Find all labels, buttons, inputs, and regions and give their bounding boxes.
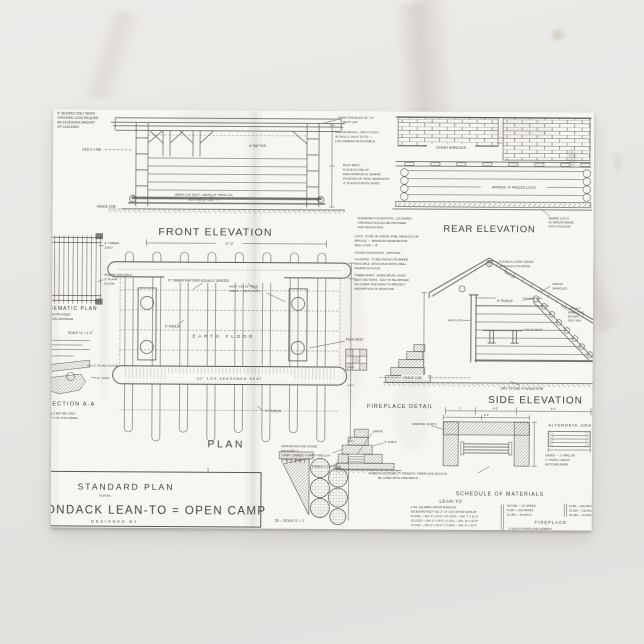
dovetail-note: LOG DIMENS ADJUSTABLE. [335, 139, 376, 143]
cedar-shingles-label: CEDAR SHINGLES [436, 146, 467, 150]
cedar-shingles-label: CEDAR [552, 282, 563, 286]
grate-label: GRATE [373, 429, 383, 433]
seat-note: HEWN LOG SEAT—HEWN 10" WIDE LOG [175, 193, 234, 197]
mortar-mix-note: MASONRY C : [281, 449, 300, 453]
rafters-note: 6" TIMBER RAFTERS EQUALLY SPACED [168, 278, 229, 282]
rubble-label: RUBBLE CONCRETE [312, 464, 341, 468]
schedule-row: 2 SQ. SQUARES CEDAR SHINGLES [411, 505, 456, 509]
hardware-row: 10 LBS — 10d NAILS [569, 509, 594, 513]
cedar-shingles-label: SHINGLES [552, 286, 567, 290]
ventilation-note: FOR VENTILATION. [358, 225, 385, 229]
peeled-logs-label: APPROX. 9" PEELED LOGS [492, 185, 537, 189]
background-stain [612, 150, 624, 176]
ceiling-line-label: CEIL'G LINE [82, 148, 102, 152]
hardware-row: 8 LBS — 60d SPIKES [569, 504, 594, 508]
logs-note: WALL LOGS — 8". [354, 243, 379, 247]
pack-rest-bench [483, 330, 522, 343]
lean-to-header: LEAN-TO [439, 499, 462, 504]
caulking-note: TAMPED IN PLACE. [354, 266, 381, 270]
alternate-grate-title: ALTERNATE GRATE [548, 422, 594, 427]
dimension: 4'-0" [493, 407, 498, 411]
side-elevation-title: SIDE ELEVATION [488, 395, 583, 407]
width-dimension: 17'-0" [225, 242, 234, 246]
shelf-label: 4" SHELF [384, 440, 397, 444]
title-block-border [51, 467, 261, 527]
pack-rest-note: IT, PLACE IN BOTH SIDES. [343, 181, 381, 185]
fireplace-header: FIREPLACE [535, 520, 567, 525]
rear-elevation-title: REAR ELEVATION [443, 224, 535, 236]
purlin-label: 6" PURLIN [265, 409, 281, 413]
blueprint-drawing: IF DESIRED ONLY WHEN CROOKED LOGS REQUIR… [51, 109, 595, 530]
schedule-row: 600 BOARD FEET T&G 2" x 8" S1S, OR FIR S… [411, 510, 477, 514]
purlin-label: 6" PURLIN [497, 299, 513, 303]
background-stain [549, 28, 567, 42]
asphalt-note: ONLY WH [568, 318, 581, 322]
scale-label: SCALE ¼" = 1'-0" [68, 331, 93, 335]
pack-rest-label: PACK REST [526, 328, 543, 332]
blueprint-labels: IF DESIRED ONLY WHEN CROOKED LOGS REQUIR… [51, 111, 595, 531]
title-block-standard-plan: STANDARD PLAN [78, 482, 175, 493]
plan-title: PLAN [207, 438, 245, 450]
cement-row: 2 SACKS PORTLAND CEMENT [509, 526, 552, 530]
hardware-row: 8 LBS — 40d SPIKES [507, 508, 534, 512]
hardware-row: 10 LBS — 8d NAILS [507, 513, 532, 517]
front-corner-note: OF CAULKING. [57, 125, 80, 129]
pack-rest-note: PACK REST : [343, 163, 362, 167]
firebrick-note: BE LINED WITH FIRE BRICK. [378, 476, 419, 480]
earth-floor-label: EARTH FLOOR [193, 334, 256, 339]
hardware-row: 100 LBS — 10" SPIKES [507, 504, 536, 508]
fireplace-detail-drawing [279, 414, 591, 526]
seat-note: BOTTOM 16" LOG [189, 198, 215, 202]
mortar-mix-note: 3 PARTS SAND [281, 458, 302, 462]
grade-line-label: GRADE LINE [97, 205, 116, 209]
schedule-row: 10 LOGS — DIA. 9" x 18'-0" | 1 LOG — DIA… [411, 519, 478, 523]
photo-background: IF DESIRED ONLY WHEN CROOKED LOGS REQUIR… [0, 0, 644, 644]
shingle-course-left [398, 117, 498, 146]
schedule-title: SCHEDULE OF MATERIALS [456, 491, 544, 498]
foundation-label: DRY STONE FOUNDATION [501, 387, 544, 391]
rear-edge-note: WITH CAULKING [549, 224, 571, 228]
foundation-note: STONE FOUNDATION : OPTIONAL [354, 251, 401, 255]
title-block-camp-name: ADIRONDACK LEAN-TO = OPEN CAMP [51, 504, 267, 518]
scale-note: 28 — SCALE ¾" = 1' [275, 519, 305, 523]
rafter-label: RAFTER [504, 271, 516, 280]
plan-drawing [107, 252, 368, 443]
schedule-row: 3 LOGS — DIA. 6" x 16'-0" | 7 LOGS — DIA… [411, 523, 477, 527]
schedule-row: 8 LOGS — DIA. 8" x 16'-0" | 10 LOGS — DI… [411, 514, 479, 518]
dimension: 6'-0" [551, 407, 556, 411]
shingle-note: BUTT LAP [343, 120, 357, 124]
alt-grate-note: NOTCHED BARS [545, 462, 568, 466]
title-block-for-an: FOR AN [99, 494, 110, 498]
marble-vein [0, 0, 265, 120]
hardware-row: 10 LBS — 3d ZINC CL. [569, 513, 594, 517]
half-log-label: HALF LOG [448, 318, 464, 322]
title-block-designed-by: DESIGNED BY [91, 519, 138, 524]
timber-joist-label: 6" TIMBER [104, 241, 120, 245]
dimension: 2' [459, 406, 461, 410]
dimension: 4'-0" [484, 413, 489, 417]
postcard-blueprint-product[interactable]: IF DESIRED ONLY WHEN CROOKED LOGS REQUIR… [51, 109, 595, 530]
alt-grate-note: ¾" RODS, LAID IN [545, 458, 569, 462]
purlin-label: 6" PURLIN [165, 325, 181, 329]
ridge-note: SHINGLES ON RIDGE [499, 264, 530, 268]
